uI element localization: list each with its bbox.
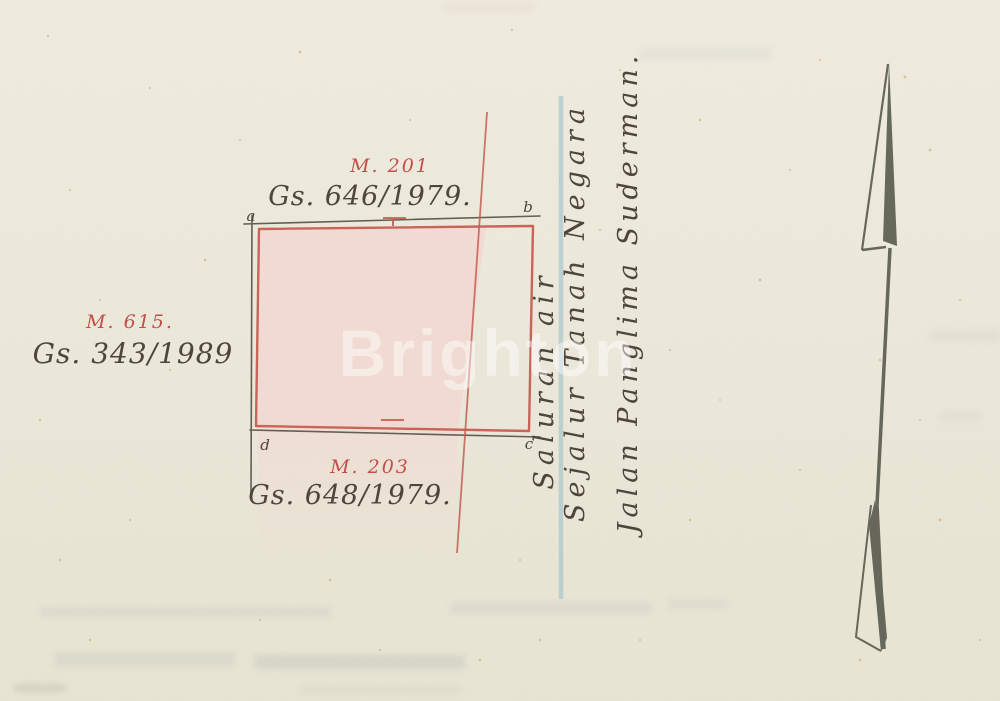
watermark-text: Brighton xyxy=(339,316,638,390)
south-parcel-number: M. 203 xyxy=(329,456,410,478)
north-parcel-number: M. 201 xyxy=(349,155,430,177)
corner-letter-top-right: b xyxy=(523,198,533,216)
north-parcel-reference: Gs. 646/1979. xyxy=(268,181,472,212)
survey-sketch-canvas: M. 201 Gs. 646/1979. M. 615. Gs. 343/198… xyxy=(0,0,1000,701)
road-name-label: Jalan Panglima Suderman. xyxy=(613,51,644,539)
scanned-survey-sketch: M. 201 Gs. 646/1979. M. 615. Gs. 343/198… xyxy=(0,0,1000,701)
west-parcel-reference: Gs. 343/1989 xyxy=(33,337,234,370)
south-parcel-reference: Gs. 648/1979. xyxy=(248,480,452,511)
west-parcel-number: M. 615. xyxy=(85,311,174,333)
corner-letter-bottom-left: d xyxy=(260,436,270,454)
state-land-label: Sejalur Tanah Negara xyxy=(560,102,591,522)
corner-letter-top-left: a xyxy=(247,207,256,225)
